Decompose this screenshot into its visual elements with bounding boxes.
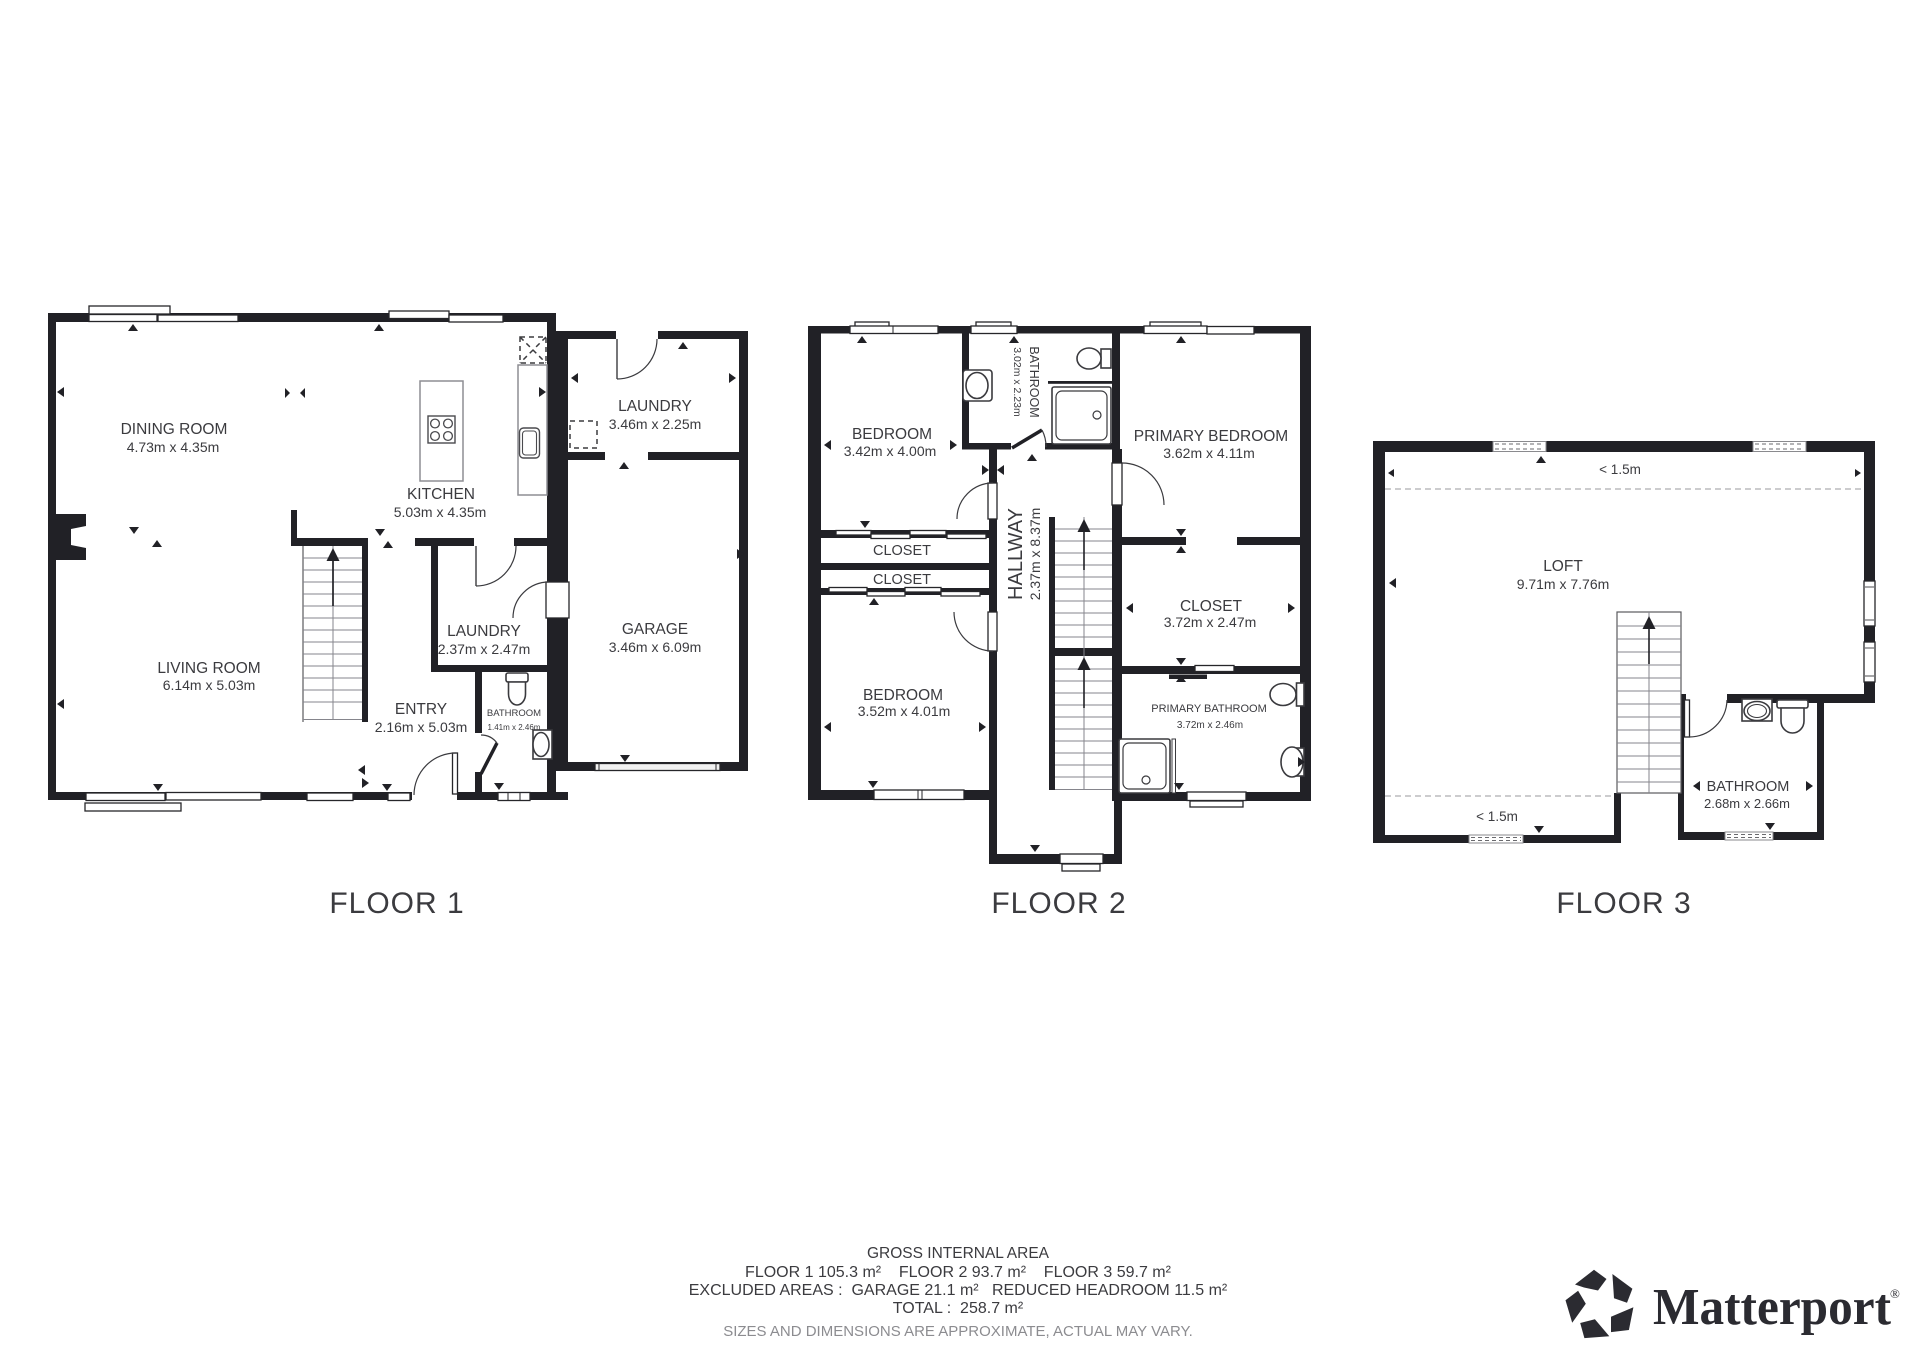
svg-text:BATHROOM: BATHROOM — [487, 708, 541, 719]
svg-text:2.37m x 2.47m: 2.37m x 2.47m — [438, 641, 531, 657]
svg-text:3.52m x 4.01m: 3.52m x 4.01m — [858, 703, 951, 719]
svg-text:LAUNDRY: LAUNDRY — [618, 398, 692, 415]
svg-text:LAUNDRY: LAUNDRY — [447, 623, 521, 640]
svg-text:SIZES AND DIMENSIONS ARE APPRO: SIZES AND DIMENSIONS ARE APPROXIMATE, AC… — [723, 1323, 1193, 1340]
svg-text:3.62m x 4.11m: 3.62m x 4.11m — [1163, 445, 1255, 461]
svg-text:3.46m x 6.09m: 3.46m x 6.09m — [609, 639, 702, 655]
svg-text:3.72m x 2.46m: 3.72m x 2.46m — [1177, 720, 1243, 731]
svg-text:2.37m x 8.37m: 2.37m x 8.37m — [1027, 508, 1043, 601]
svg-text:5.03m x 4.35m: 5.03m x 4.35m — [394, 504, 487, 520]
svg-text:PRIMARY BEDROOM: PRIMARY BEDROOM — [1134, 428, 1288, 445]
svg-text:®: ® — [1890, 1286, 1900, 1301]
svg-text:FLOOR 3: FLOOR 3 — [1556, 887, 1691, 920]
svg-text:LOFT: LOFT — [1543, 558, 1583, 575]
svg-text:BATHROOM: BATHROOM — [1027, 346, 1041, 417]
svg-text:3.42m x 4.00m: 3.42m x 4.00m — [844, 443, 937, 459]
svg-text:6.14m x 5.03m: 6.14m x 5.03m — [163, 677, 256, 693]
svg-text:CLOSET: CLOSET — [873, 572, 931, 588]
svg-text:PRIMARY BATHROOM: PRIMARY BATHROOM — [1151, 703, 1267, 715]
svg-text:GROSS INTERNAL AREA: GROSS INTERNAL AREA — [867, 1245, 1050, 1262]
svg-text:TOTAL : 258.7 m²: TOTAL : 258.7 m² — [893, 1300, 1024, 1317]
svg-text:HALLWAY: HALLWAY — [1005, 508, 1027, 600]
svg-text:FLOOR 1 105.3 m² FLOOR 2 93: FLOOR 1 105.3 m² FLOOR 2 93.7 m² FLOOR 3… — [745, 1264, 1172, 1281]
svg-text:FLOOR 1: FLOOR 1 — [329, 887, 464, 920]
svg-text:FLOOR 2: FLOOR 2 — [991, 887, 1126, 920]
svg-text:3.72m x 2.47m: 3.72m x 2.47m — [1164, 614, 1257, 630]
svg-text:ENTRY: ENTRY — [395, 701, 447, 718]
svg-text:GARAGE: GARAGE — [622, 621, 688, 638]
svg-text:< 1.5m: < 1.5m — [1599, 462, 1641, 477]
svg-text:KITCHEN: KITCHEN — [407, 486, 475, 503]
svg-text:2.16m x 5.03m: 2.16m x 5.03m — [375, 719, 468, 735]
svg-text:DINING ROOM: DINING ROOM — [121, 421, 228, 438]
svg-text:2.68m x 2.66m: 2.68m x 2.66m — [1704, 796, 1790, 811]
svg-text:Matterport: Matterport — [1653, 1279, 1892, 1336]
svg-text:BATHROOM: BATHROOM — [1707, 779, 1790, 795]
svg-text:BEDROOM: BEDROOM — [852, 426, 932, 443]
svg-text:CLOSET: CLOSET — [1180, 598, 1243, 615]
svg-text:BEDROOM: BEDROOM — [863, 687, 943, 704]
svg-text:EXCLUDED AREAS : GARAGE 21.1: EXCLUDED AREAS : GARAGE 21.1 m² REDUCED … — [689, 1282, 1228, 1299]
svg-text:LIVING ROOM: LIVING ROOM — [157, 660, 260, 677]
svg-text:3.46m x 2.25m: 3.46m x 2.25m — [609, 416, 702, 432]
svg-text:< 1.5m: < 1.5m — [1476, 809, 1518, 824]
svg-text:3.02m x 2.23m: 3.02m x 2.23m — [1011, 347, 1023, 417]
svg-text:CLOSET: CLOSET — [873, 543, 931, 559]
svg-text:1.41m x 2.46m: 1.41m x 2.46m — [488, 723, 541, 732]
svg-text:4.73m x 4.35m: 4.73m x 4.35m — [127, 439, 220, 455]
svg-text:9.71m x 7.76m: 9.71m x 7.76m — [1517, 576, 1610, 592]
